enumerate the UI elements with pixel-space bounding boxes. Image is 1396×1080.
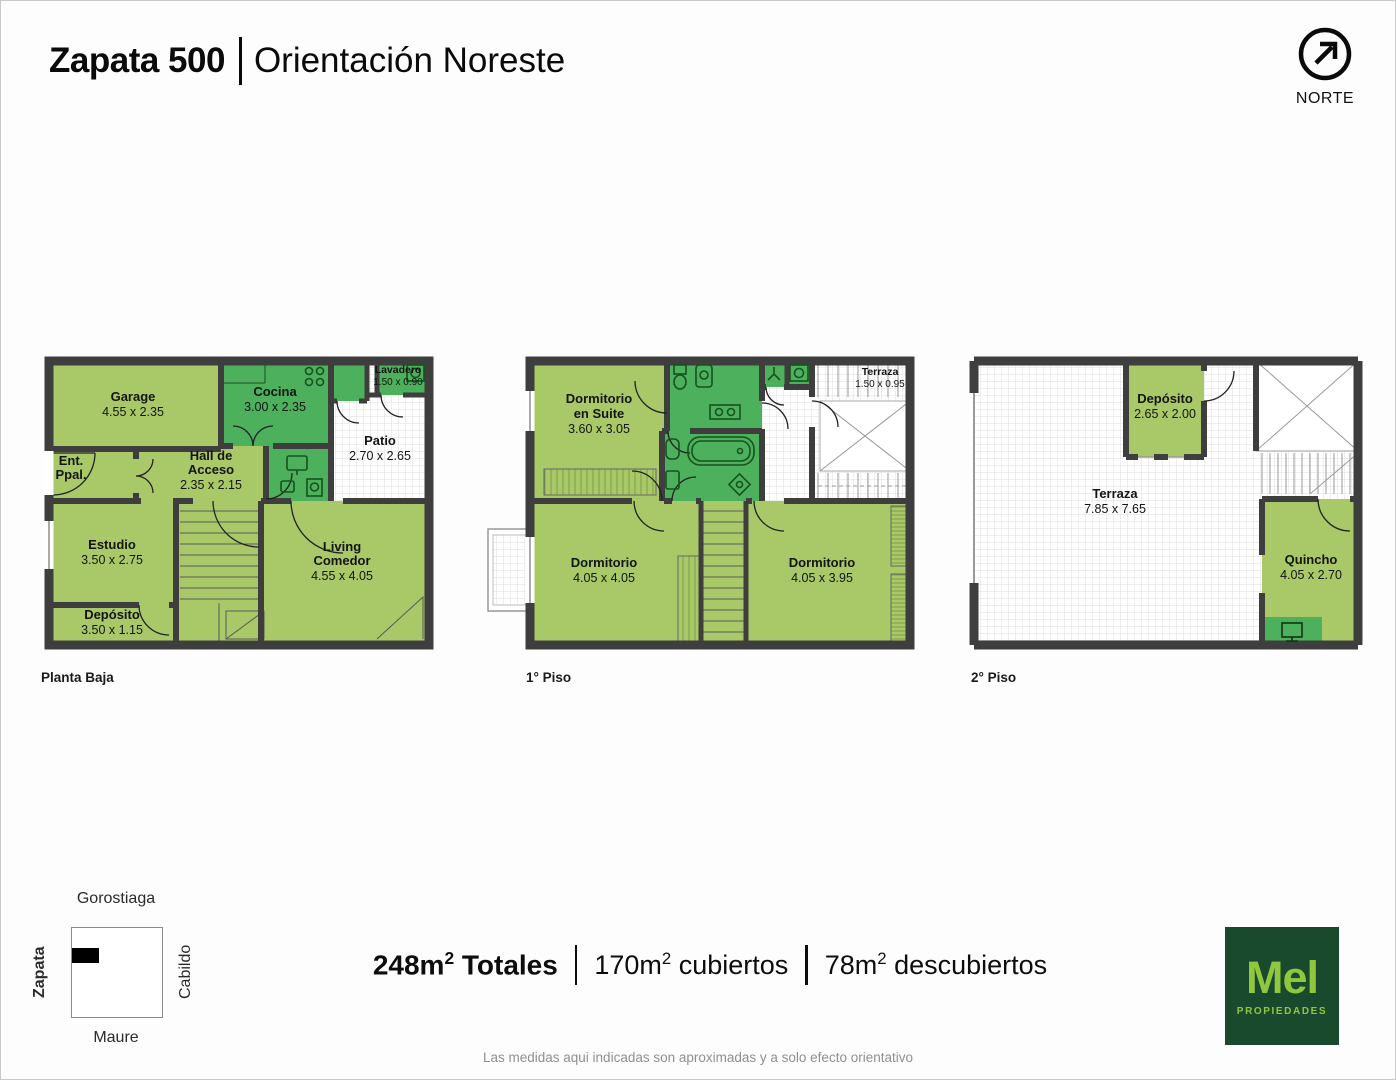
floorplan-sheet: Zapata 500 Orientación Noreste NORTE [0, 0, 1396, 1080]
room-dims: 4.05 x 2.70 [1280, 568, 1342, 582]
floor-label-segundo-piso: 2° Piso [971, 670, 1016, 685]
room-dims: 3.00 x 2.35 [244, 400, 306, 414]
totals-divider [805, 945, 808, 985]
floor-label-primer-piso: 1° Piso [526, 670, 571, 685]
room-label: Depósito [1137, 391, 1193, 406]
uncovered-area: 78m2 descubiertos [825, 949, 1047, 981]
total-area: 248m2 Totales [373, 948, 558, 981]
agency-logo: Mel PROPIEDADES [1225, 927, 1339, 1045]
room-label: en Suite [574, 406, 625, 421]
room-label: Dormitorio [789, 555, 856, 570]
room-label: Estudio [88, 537, 136, 552]
totals-divider [575, 945, 578, 985]
north-label: NORTE [1285, 90, 1365, 108]
disclaimer-text: Las medidas aqui indicadas son aproximad… [1, 1050, 1395, 1065]
covered-area: 170m2 cubiertos [594, 949, 788, 981]
room-label: Terraza [862, 366, 899, 378]
logo-tagline: PROPIEDADES [1237, 1006, 1327, 1017]
room-dims: 3.60 x 3.05 [568, 422, 630, 436]
title-address: Zapata 500 [49, 41, 225, 81]
room-label: Comedor [313, 553, 370, 568]
room-dims: 3.50 x 1.15 [81, 623, 143, 637]
title-divider [239, 37, 242, 85]
room-label: Living [323, 539, 361, 554]
room-label: Ppal. [55, 467, 86, 482]
area-totals: 248m2 Totales 170m2 cubiertos 78m2 descu… [13, 945, 1396, 985]
room-dims: 7.85 x 7.65 [1084, 502, 1146, 516]
room-label: Lavadero [375, 364, 422, 376]
room-label: Terraza [1092, 486, 1138, 501]
room-label: Patio [364, 433, 396, 448]
floor-plan-planta-baja: Garage 4.55 x 2.35 Cocina 3.00 x 2.35 La… [41, 353, 437, 653]
title-orientation: Orientación Noreste [254, 41, 565, 81]
street-label-bottom: Maure [56, 1029, 176, 1047]
page-title: Zapata 500 Orientación Noreste [49, 37, 565, 85]
room-dims: 1.50 x 0.95 [855, 379, 905, 390]
floor-plan-segundo-piso: Depósito 2.65 x 2.00 Terraza 7.85 x 7.65… [966, 353, 1366, 653]
room-label: Cocina [253, 384, 297, 399]
room-dims: 1.50 x 0.90 [373, 377, 423, 388]
room-dims: 4.05 x 4.05 [573, 571, 635, 585]
logo-brand: Mel [1246, 955, 1318, 1000]
room-label: Acceso [188, 462, 234, 477]
room-label: Garage [111, 389, 156, 404]
street-label-top: Gorostiaga [56, 890, 176, 908]
north-indicator: NORTE [1285, 25, 1365, 108]
room-dims: 4.55 x 4.05 [311, 569, 373, 583]
room-dims: 2.65 x 2.00 [1134, 407, 1196, 421]
room-label: Depósito [84, 607, 140, 622]
room-label: Dormitorio [571, 555, 638, 570]
floor-label-planta-baja: Planta Baja [41, 670, 114, 685]
room-dims: 2.35 x 2.15 [180, 478, 242, 492]
room-label: Quincho [1285, 552, 1338, 567]
room-label: Ent. [59, 453, 84, 468]
room-dims: 4.05 x 3.95 [791, 571, 853, 585]
north-arrow-icon [1296, 25, 1354, 83]
room-dims: 3.50 x 2.75 [81, 553, 143, 567]
room-label: Hall de [190, 448, 233, 463]
floor-plan-primer-piso: Dormitorio en Suite 3.60 x 3.05 Terraza … [482, 353, 922, 653]
room-dims: 2.70 x 2.65 [349, 449, 411, 463]
room-dims: 4.55 x 2.35 [102, 405, 164, 419]
room-label: Dormitorio [566, 391, 633, 406]
